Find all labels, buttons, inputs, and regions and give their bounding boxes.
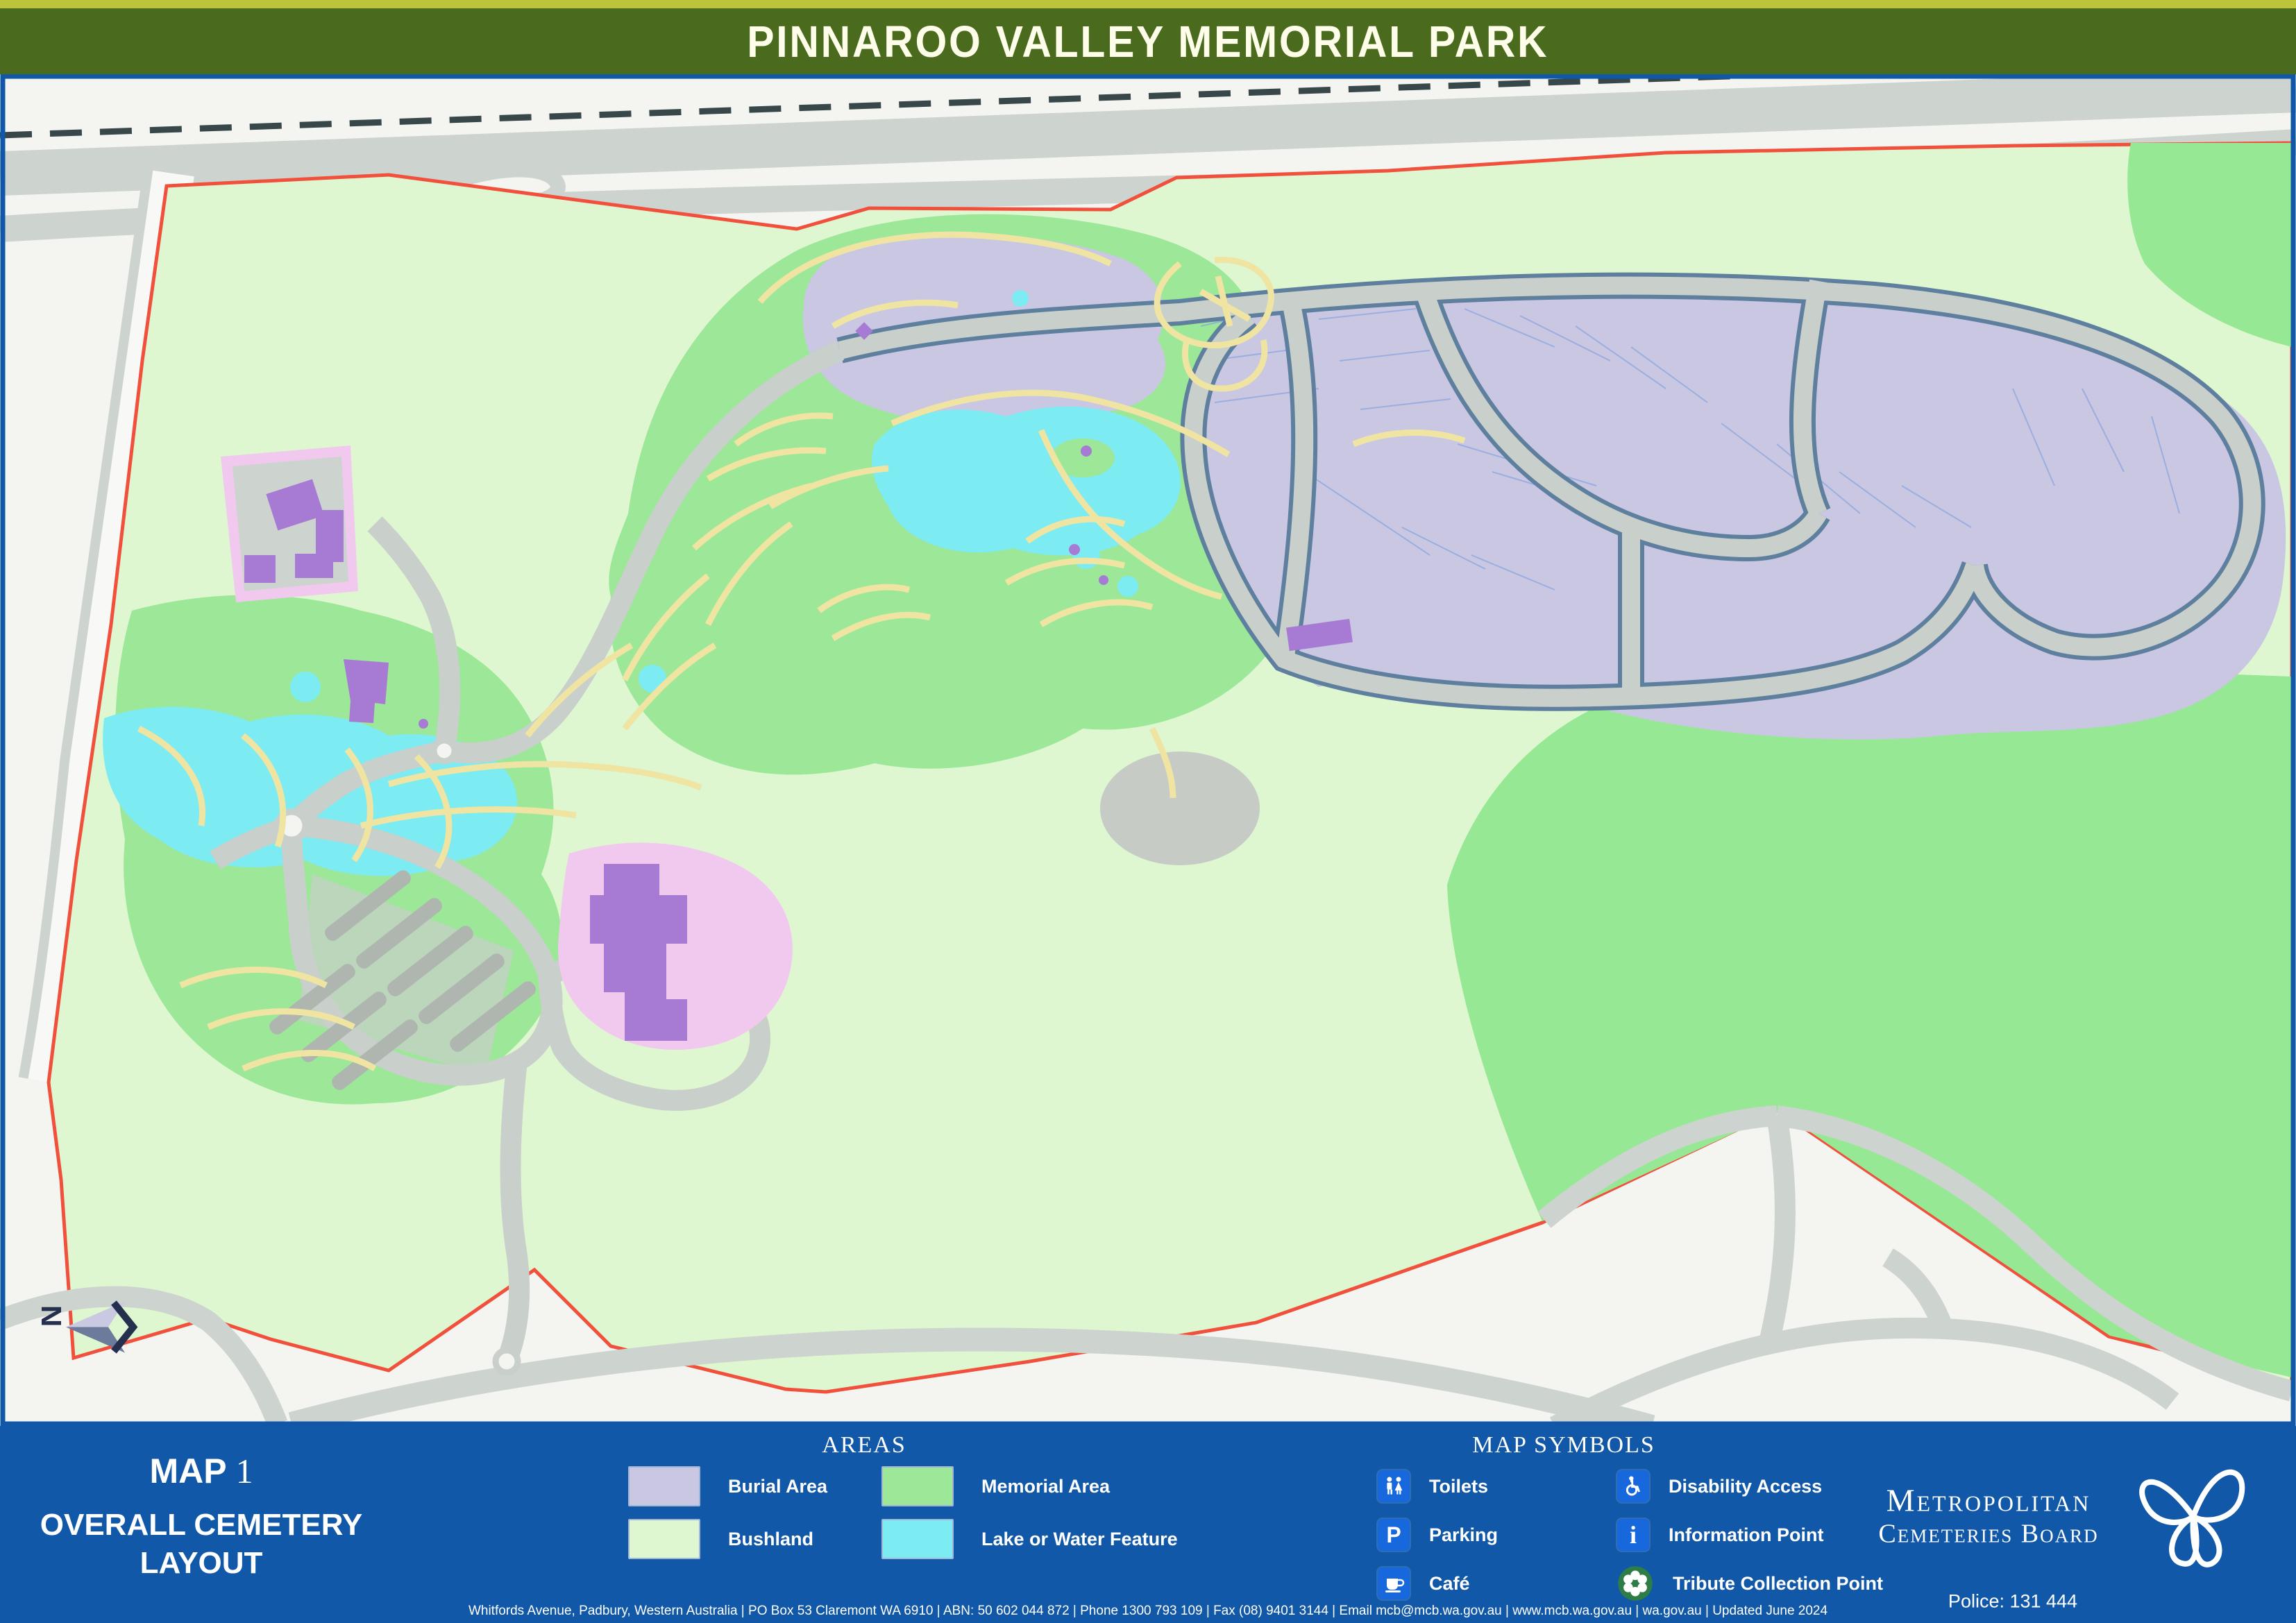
- legend-symbol-icon: i: [1617, 1565, 1653, 1601]
- symbol-label: Tribute Collection Point: [1673, 1573, 1883, 1595]
- legend-area-row: Bushland: [628, 1519, 827, 1559]
- areas-heading: AREAS: [822, 1432, 906, 1459]
- cafe-icon: [1378, 1567, 1410, 1599]
- symbol-label: Information Point: [1669, 1524, 1823, 1546]
- legend-symbol-icon: P: [1378, 1470, 1410, 1502]
- map-title: OVERALL CEMETERY LAYOUT: [40, 1506, 363, 1582]
- page-title: PINNAROO VALLEY MEMORIAL PARK: [747, 16, 1548, 67]
- police-phone: Police: 131 444: [1948, 1591, 2077, 1613]
- legend-symbol-icon: i: [1617, 1519, 1649, 1551]
- map-area: P P i: [0, 74, 2296, 1426]
- map-number: MAP 1: [149, 1451, 253, 1491]
- legend-area-row: Memorial Area: [881, 1466, 1178, 1506]
- symbol-label: Parking: [1429, 1524, 1498, 1546]
- area-color-swatch: [881, 1519, 954, 1559]
- symbols-heading: MAP SYMBOLS: [1472, 1432, 1655, 1459]
- parking-icon: P: [1378, 1519, 1410, 1551]
- area-color-swatch: [881, 1466, 954, 1506]
- symbol-label: Disability Access: [1669, 1476, 1822, 1497]
- tribute-collection-icon: [1617, 1565, 1653, 1601]
- legend-symbol-icon: P: [1378, 1519, 1410, 1551]
- contact-fine-print: Whitfords Avenue, Padbury, Western Austr…: [469, 1604, 1827, 1619]
- legend-symbol-icon: P: [1378, 1567, 1410, 1599]
- legend-symbol-row: P Toilets: [1378, 1466, 1498, 1506]
- legend-area-row: Burial Area: [628, 1466, 827, 1506]
- legend-symbol-row: i Tribute Collection Point: [1617, 1563, 1883, 1604]
- symbols-column-2: i Disability Access i: [1617, 1466, 1883, 1604]
- legend-area-row: Lake or Water Feature: [881, 1519, 1178, 1559]
- north-arrow: N: [42, 1296, 146, 1362]
- information-icon: i: [1617, 1519, 1649, 1551]
- area-label: Lake or Water Feature: [981, 1529, 1178, 1550]
- north-letter: N: [42, 1305, 68, 1327]
- legend-symbol-row: P Parking: [1378, 1515, 1498, 1555]
- legend-symbol-row: i Disability Access: [1617, 1466, 1883, 1506]
- mcb-butterfly-logo: [2131, 1447, 2256, 1583]
- disability-icon: [1617, 1470, 1649, 1502]
- area-label: Memorial Area: [981, 1476, 1110, 1497]
- toilets-icon: [1378, 1470, 1410, 1502]
- areas-column-1: Burial Area Bushland: [628, 1466, 827, 1559]
- map-labels-layer: [0, 74, 2296, 1426]
- pinnaroo-map-page: PINNAROO VALLEY MEMORIAL PARK P P i: [0, 0, 2296, 1623]
- legend-symbol-icon: i: [1617, 1470, 1649, 1502]
- symbol-label: Café: [1429, 1573, 1470, 1595]
- organisation-name: Metropolitan Cemeteries Board: [1878, 1483, 2098, 1550]
- legend-symbol-row: i Information Point: [1617, 1515, 1883, 1555]
- symbols-column-1: P Toilets P: [1378, 1466, 1498, 1604]
- title-bar: PINNAROO VALLEY MEMORIAL PARK: [0, 8, 2296, 74]
- area-label: Bushland: [728, 1529, 813, 1550]
- legend-footer: MAP 1 OVERALL CEMETERY LAYOUT AREAS Buri…: [0, 1426, 2296, 1623]
- area-color-swatch: [628, 1466, 700, 1506]
- area-color-swatch: [628, 1519, 700, 1559]
- area-label: Burial Area: [728, 1476, 827, 1497]
- top-stripe: [0, 0, 2296, 8]
- symbol-label: Toilets: [1429, 1476, 1488, 1497]
- legend-symbol-row: P Café: [1378, 1563, 1498, 1604]
- areas-column-2: Memorial Area Lake or Water Feature: [881, 1466, 1178, 1559]
